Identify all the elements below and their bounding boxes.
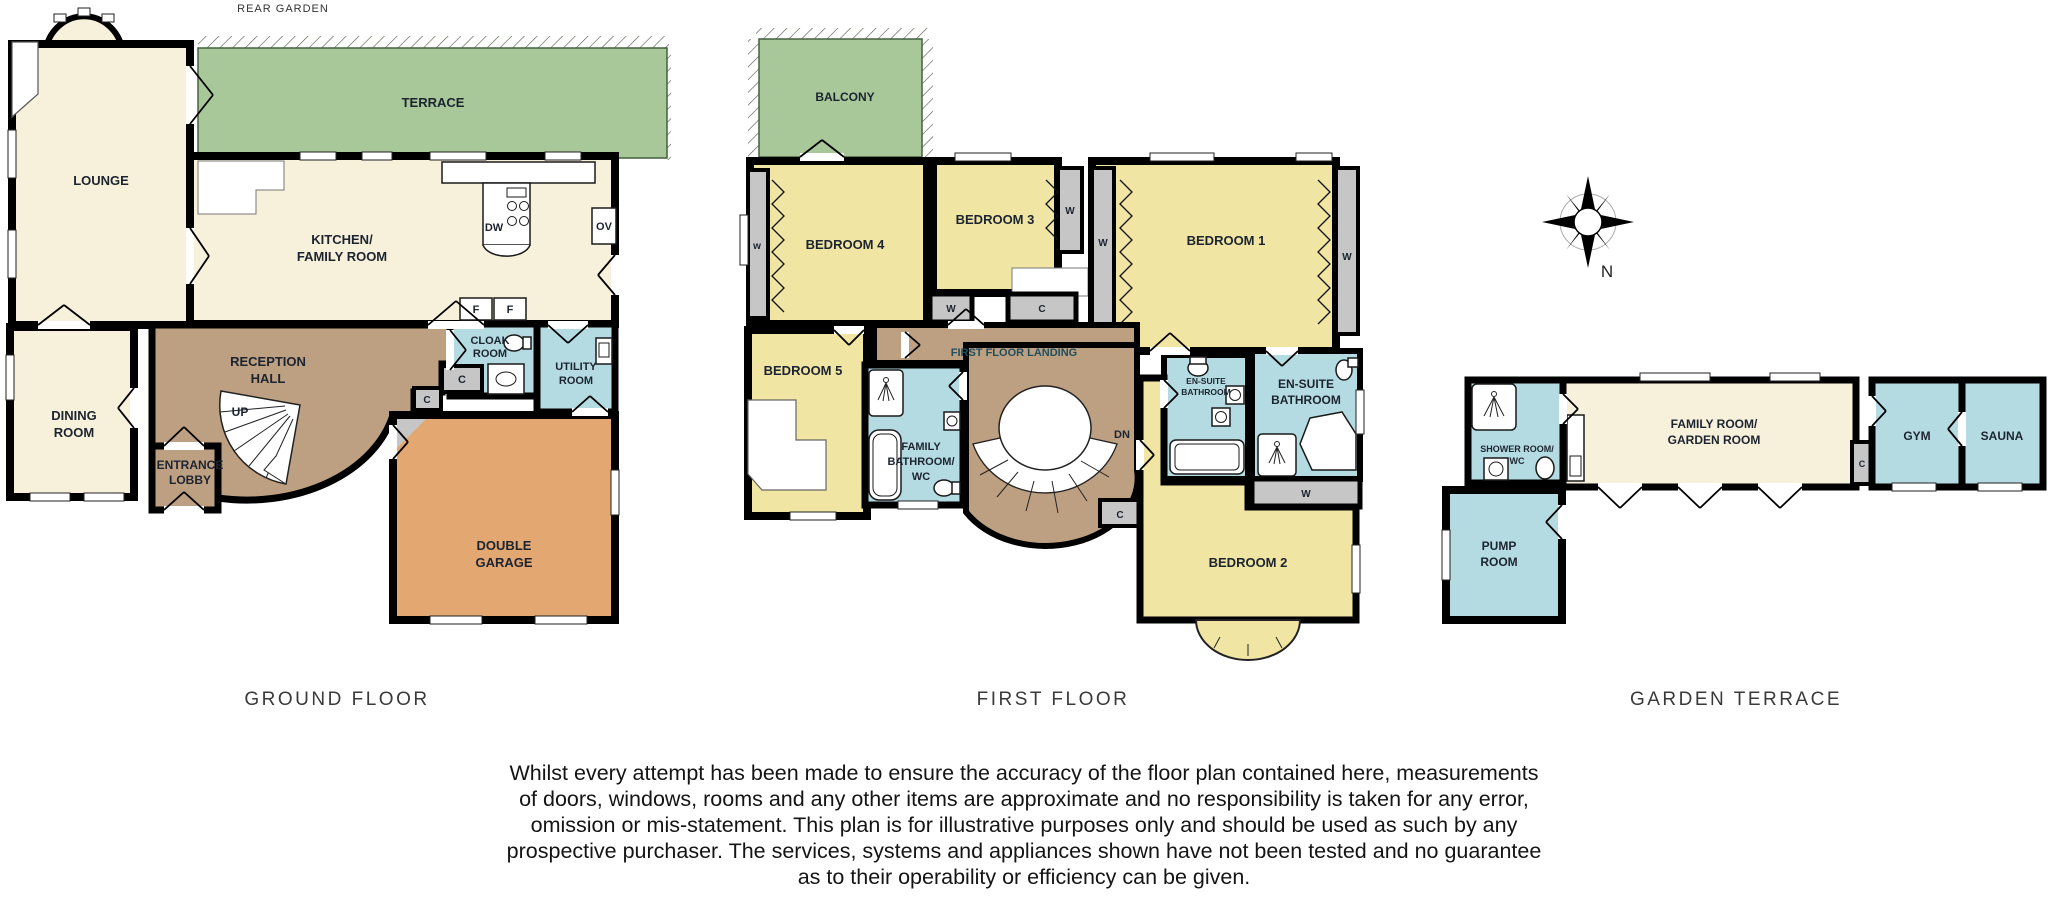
- window: [430, 152, 486, 160]
- window: [78, 8, 90, 16]
- cupboard-label: C: [458, 374, 466, 386]
- pump-room-label: PUMP: [1482, 539, 1517, 553]
- bedroom1-label: BEDROOM 1: [1187, 233, 1266, 248]
- window: [740, 215, 748, 265]
- ground-floor-title: GROUND FLOOR: [244, 689, 429, 710]
- wardrobe: [1092, 168, 1114, 334]
- door-garden-3: [1758, 483, 1802, 508]
- floorplan-canvas: REAR GARDEN LOUNGE TERRACE KITCHEN/ FAMI…: [0, 0, 2048, 900]
- cloak-room-label: ROOM: [473, 348, 507, 360]
- bathtub-icon: [1170, 440, 1244, 474]
- utility-room-label: ROOM: [559, 375, 593, 387]
- window: [790, 512, 836, 520]
- cloak-room-label: CLOAK: [470, 335, 509, 347]
- dining-label: DINING: [51, 408, 97, 423]
- bedroom4-label: BEDROOM 4: [806, 237, 886, 252]
- kitchen-label: FAMILY ROOM: [297, 249, 387, 264]
- gym-label: GYM: [1903, 429, 1930, 443]
- window: [955, 153, 1011, 161]
- window: [611, 470, 619, 515]
- ensuite2-label: EN-SUITE: [1278, 377, 1334, 391]
- window: [8, 130, 16, 178]
- window: [1356, 390, 1364, 434]
- wardrobe-label: W: [1342, 252, 1352, 263]
- cupboard-label: C: [1859, 459, 1866, 469]
- wardrobe-label: W: [946, 304, 956, 315]
- balcony-label: BALCONY: [815, 90, 874, 104]
- lounge-label: LOUNGE: [73, 173, 129, 188]
- first-floor-title: FIRST FLOOR: [977, 689, 1130, 710]
- basin-icon: [944, 412, 960, 430]
- rear-garden-label: REAR GARDEN: [237, 3, 329, 15]
- disclaimer-line: as to their operability or efficiency ca…: [798, 865, 1251, 889]
- window: [30, 493, 70, 501]
- reception-hall-label: RECEPTION: [230, 354, 306, 369]
- disclaimer: Whilst every attempt has been made to en…: [507, 761, 1542, 889]
- shower-room-label: SHOWER ROOM/: [1480, 444, 1554, 454]
- family-bathroom-label: BATHROOM/: [887, 456, 954, 468]
- window: [1978, 483, 2022, 491]
- window: [8, 230, 16, 278]
- garage-door: [430, 616, 482, 624]
- toilet-cistern: [1190, 357, 1206, 364]
- window: [545, 152, 581, 160]
- bedroom5-label: BEDROOM 5: [764, 363, 843, 378]
- room-double-garage: [393, 415, 615, 620]
- wardrobe: [1336, 168, 1358, 334]
- garage-door: [535, 616, 587, 624]
- utility-room-label: UTILITY: [555, 361, 597, 373]
- wardrobe-label: W: [1301, 489, 1311, 500]
- toilet-cistern: [1348, 358, 1358, 367]
- door-garden-1: [1598, 483, 1642, 508]
- compass-north-label: N: [1601, 262, 1613, 281]
- garage-label: DOUBLE: [477, 538, 532, 553]
- window: [54, 14, 66, 22]
- ensuite1-label: EN-SUITE: [1186, 376, 1226, 386]
- stairs-down-label: DN: [1114, 429, 1130, 441]
- floorplan-page: { "colors": { "cream": "#F7F0DB", "green…: [0, 0, 2048, 900]
- shower-icon: [1258, 434, 1296, 476]
- oven-label: OV: [596, 221, 613, 233]
- kitchen-label: KITCHEN/: [311, 232, 373, 247]
- kitchen-worktop: [442, 162, 595, 183]
- wardrobe-label: w: [752, 241, 761, 252]
- bedroom3-label: BEDROOM 3: [956, 212, 1035, 227]
- disclaimer-line: prospective purchaser. The services, sys…: [507, 839, 1542, 863]
- window: [300, 152, 336, 160]
- family-garden-room-label: GARDEN ROOM: [1668, 433, 1761, 447]
- ground-floor-plan: REAR GARDEN LOUNGE TERRACE KITCHEN/ FAMI…: [6, 3, 671, 624]
- garden-terrace-plan: SHOWER ROOM/ WC FAMILY ROOM/ GARDEN ROOM…: [1442, 373, 2043, 620]
- bedroom2-label: BEDROOM 2: [1209, 555, 1288, 570]
- basin-icon: [1212, 408, 1230, 426]
- sauna-label: SAUNA: [1981, 429, 2024, 443]
- balcony-hatch: [922, 39, 933, 157]
- disclaimer-line: Whilst every attempt has been made to en…: [510, 761, 1539, 785]
- window: [1296, 153, 1332, 161]
- toilet-icon: [1536, 457, 1554, 479]
- dining-label: ROOM: [54, 425, 94, 440]
- window: [1770, 373, 1820, 381]
- door-garden-2: [1678, 483, 1722, 508]
- family-bathroom-label: FAMILY: [901, 441, 941, 453]
- landing-label: FIRST FLOOR LANDING: [951, 347, 1078, 359]
- wardrobe-label: W: [1065, 206, 1075, 217]
- terrace-hatch-top: [198, 36, 669, 48]
- window: [102, 14, 114, 22]
- fridge-label: F: [473, 304, 480, 316]
- dishwasher-label: DW: [485, 222, 504, 234]
- window: [898, 501, 938, 509]
- toilet-cistern: [523, 337, 531, 349]
- toilet-cistern: [952, 482, 960, 494]
- shower-icon: [869, 370, 903, 416]
- ensuite2-label: BATHROOM: [1271, 393, 1341, 407]
- window: [1150, 153, 1214, 161]
- disclaimer-line: omission or mis-statement. This plan is …: [531, 813, 1518, 837]
- window: [1442, 530, 1450, 580]
- balcony-hatch: [748, 39, 759, 157]
- cupboard-label: C: [1038, 304, 1045, 315]
- stairs-up-label: UP: [232, 405, 249, 419]
- entrance-lobby-label: ENTRANCE: [157, 458, 224, 472]
- terrace-label: TERRACE: [402, 95, 465, 110]
- freezer-label: F: [507, 304, 514, 316]
- family-bathroom-label: WC: [912, 471, 930, 483]
- compass-icon: N: [1542, 176, 1634, 281]
- ensuite1-label: BATHROOM: [1181, 387, 1230, 397]
- window: [362, 152, 392, 160]
- toilet-icon: [934, 480, 954, 496]
- garage-label: GARAGE: [475, 555, 532, 570]
- window: [1640, 373, 1710, 381]
- disclaimer-line: of doors, windows, rooms and any other i…: [519, 787, 1529, 811]
- shower-icon: [1472, 384, 1516, 430]
- corner-bath-icon: [1300, 412, 1356, 470]
- shower-room-label: WC: [1510, 456, 1525, 466]
- balcony-hatch: [756, 28, 928, 39]
- first-floor-plan: BALCONY BEDROOM 4 BEDROOM 3 BEDROOM 1 BE…: [740, 28, 1364, 660]
- pump-room-label: ROOM: [1480, 555, 1517, 569]
- family-garden-room-label: FAMILY ROOM/: [1671, 417, 1758, 431]
- sink-icon: [596, 338, 612, 364]
- basin-icon: [1484, 458, 1508, 480]
- window: [6, 355, 14, 400]
- window: [84, 493, 124, 501]
- wardrobe-label: W: [1098, 238, 1108, 249]
- entrance-lobby-label: LOBBY: [169, 473, 211, 487]
- reception-hall-label: HALL: [251, 371, 286, 386]
- basin-unit: [488, 364, 524, 394]
- garden-terrace-title: GARDEN TERRACE: [1630, 689, 1842, 710]
- window: [1892, 483, 1936, 491]
- cupboard-label: C: [1116, 510, 1123, 521]
- window: [1352, 545, 1360, 593]
- cupboard-label: C: [423, 395, 430, 406]
